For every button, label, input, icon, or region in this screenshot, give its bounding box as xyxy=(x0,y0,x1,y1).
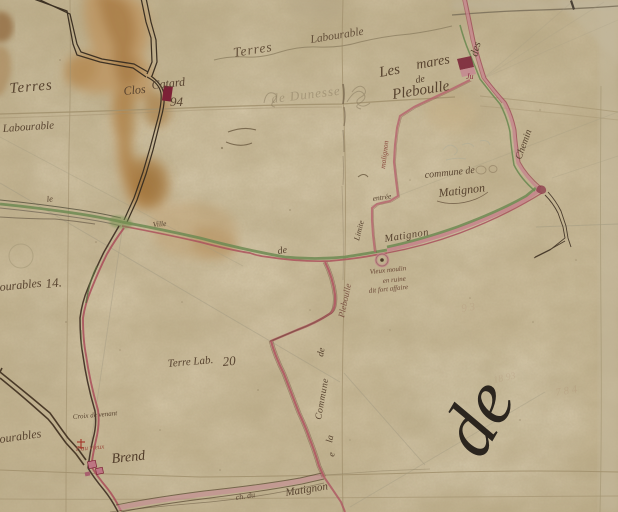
svg-text:le: le xyxy=(46,193,53,204)
svg-text:Clos: Clos xyxy=(123,82,147,98)
svg-text:de: de xyxy=(316,347,327,358)
svg-text:9 3: 9 3 xyxy=(460,301,476,315)
svg-text:94: 94 xyxy=(170,94,184,109)
svg-text:14.: 14. xyxy=(45,274,63,291)
svg-text:Ju: Ju xyxy=(466,72,474,81)
svg-text:Ville: Ville xyxy=(152,219,167,229)
svg-text:20: 20 xyxy=(222,353,237,369)
svg-text:. ..: . .. xyxy=(545,197,554,207)
